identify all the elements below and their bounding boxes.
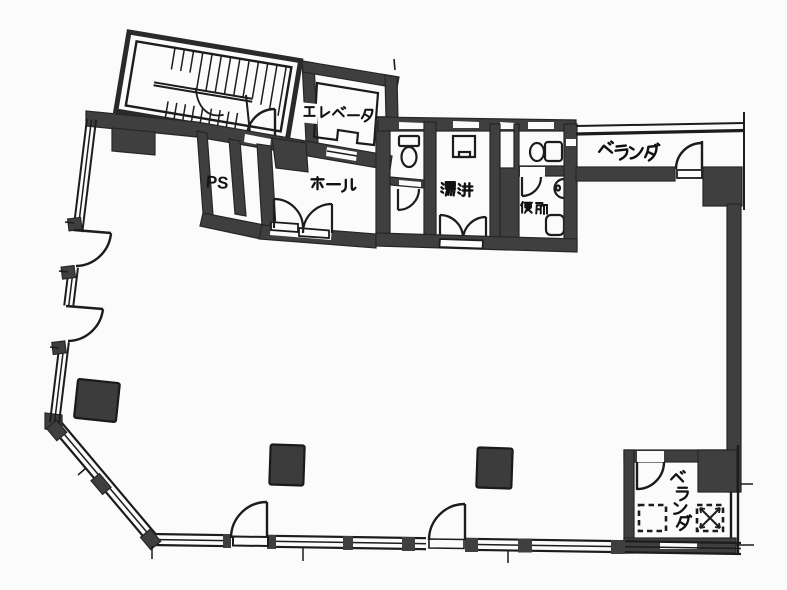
- svg-text:PS: PS: [205, 172, 229, 193]
